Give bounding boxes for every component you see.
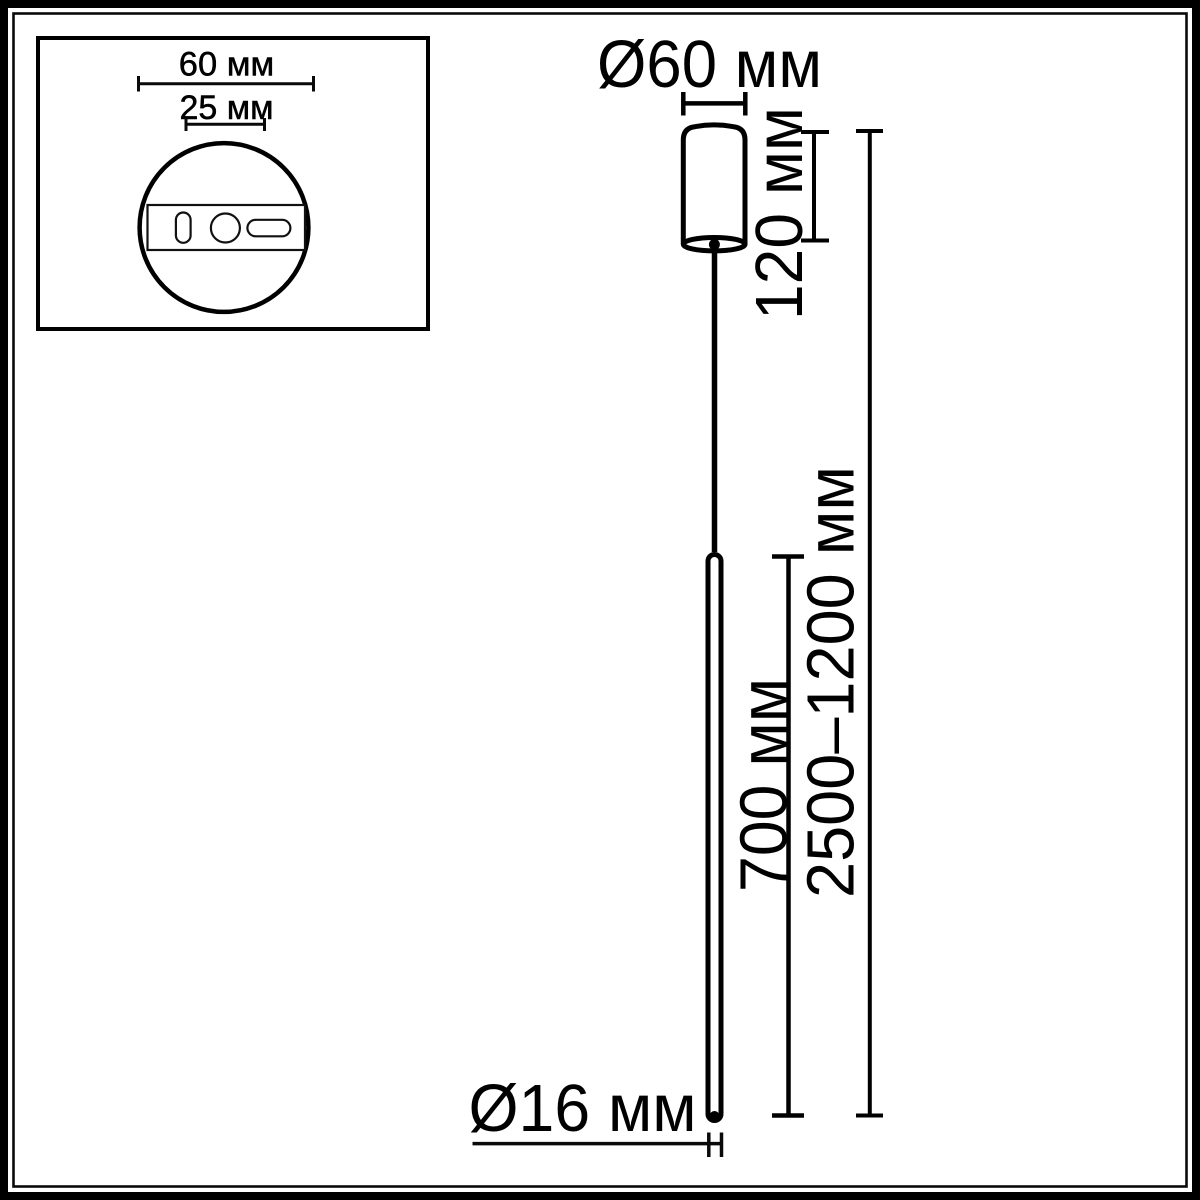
svg-text:120 мм: 120 мм — [742, 107, 817, 320]
svg-text:60 мм: 60 мм — [179, 46, 274, 84]
svg-text:Ø16 мм: Ø16 мм — [469, 1071, 697, 1146]
svg-text:25 мм: 25 мм — [179, 89, 273, 127]
svg-text:2500–1200 мм: 2500–1200 мм — [794, 466, 869, 898]
svg-text:Ø60 мм: Ø60 мм — [597, 27, 822, 102]
